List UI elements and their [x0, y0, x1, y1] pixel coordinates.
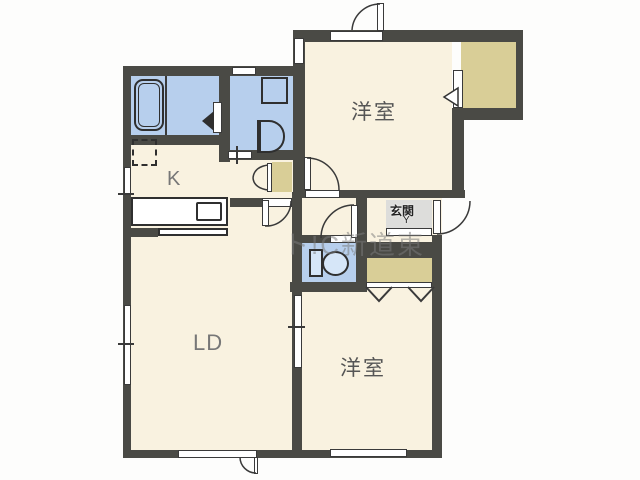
top-room-door-arc — [307, 158, 339, 190]
folding-door-mark — [408, 287, 434, 301]
folding-door-mark — [366, 287, 392, 301]
hall-closet-bifold-arc — [253, 165, 268, 178]
room-label-entrance: 玄関 — [390, 202, 414, 219]
room-label-ld: LD — [193, 330, 223, 356]
entrance-door-arc — [437, 201, 470, 234]
room-label-kitchen: K — [167, 168, 180, 191]
room-label-western-top: 洋室 — [351, 96, 397, 126]
terrace-door-arc — [240, 457, 256, 473]
room-label-western-bottom: 洋室 — [340, 352, 386, 382]
hall-closet-bifold-arc — [253, 178, 268, 190]
watermark: ト!C新道東 — [283, 225, 425, 262]
ld-door-arc — [265, 201, 291, 226]
floor-plan: K LD 洋室 洋室 玄関 Y ト!C新道東 — [0, 0, 640, 480]
closet-door-swing-triangle — [444, 88, 458, 106]
balcony-door-arc — [352, 4, 380, 30]
bath-door-swing-triangle — [202, 111, 214, 131]
